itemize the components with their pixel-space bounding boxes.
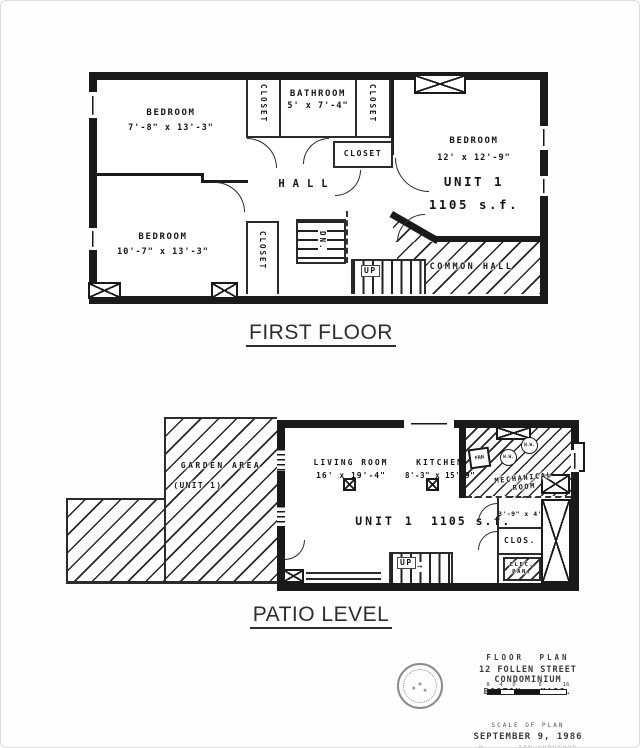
common-hall-wall [435, 236, 540, 242]
stair-dash-line [346, 211, 348, 263]
closet-mid: CLOSET [333, 141, 393, 168]
window-slot-icon [89, 228, 97, 250]
stairs-up-patio: UP → [389, 552, 453, 583]
surveyor-line: P·· ····ION SURVEYOR [449, 744, 607, 748]
shaft-box [541, 499, 571, 583]
bedroom-right-label: BEDROOM 12' x 12'-9" UNIT 1 1105 s.f. [422, 136, 526, 213]
floor-plan-sheet: CLOSET BATHROOM 5' x 7'-4" CLOSET CLOSET… [0, 0, 640, 748]
closet-label: CLOSET [344, 149, 383, 159]
bedroom-bottom-left-label: BEDROOM 10'-7" x 13'-3" [103, 232, 223, 258]
scale-label: SCALE OF PLAN [449, 722, 607, 729]
patio-closet: CLOS. [499, 529, 541, 555]
bathroom-room: BATHROOM 5' x 7'-4" [281, 80, 357, 138]
first-floor-plan: CLOSET BATHROOM 5' x 7'-4" CLOSET CLOSET… [89, 72, 548, 304]
closet-top-right: CLOSET [357, 80, 391, 138]
window-icon [283, 569, 304, 583]
garden-area-lower [66, 498, 164, 584]
door-arc [285, 540, 305, 560]
closet-label: CLOSET [368, 84, 377, 123]
door-arc [215, 182, 245, 212]
kitchen-label: KITCHEN 8'-3" x 15'-9" [405, 458, 475, 481]
plan-date: SEPTEMBER 9, 1986 [449, 732, 607, 742]
window-slot-icon [277, 506, 285, 526]
window-slot-icon [540, 176, 548, 196]
bathroom-dims: 5' x 7'-4" [281, 101, 355, 112]
garden-unit-label: (UNIT 1) [166, 481, 230, 491]
closet-label: CLOSET [258, 231, 267, 270]
small-room-3-9: 3'-9" x 4' [499, 501, 541, 529]
window-icon [414, 74, 466, 94]
bedroom-divider-wall [97, 173, 201, 176]
bedroom-top-left-label: BEDROOM 7'-8" x 13'-3" [107, 108, 235, 134]
scale-bar: 8 4 0 8 16 [487, 689, 567, 695]
window-slot-icon [89, 92, 97, 118]
title-line1: FLOOR PLAN [449, 653, 607, 662]
bathroom-label: BATHROOM [281, 89, 355, 101]
window-sill [306, 572, 381, 580]
stairs-down: DN. [296, 219, 346, 264]
stairs-up-label: UP [361, 265, 380, 277]
patio-level-heading: PATIO LEVEL [1, 603, 640, 627]
garden-area-label: GARDEN AREA [170, 461, 272, 471]
hot-water-tank-icon: H.W. [521, 437, 538, 454]
electrical-panel: ELEC. PAN. [503, 557, 541, 581]
up-arrow-icon: → [417, 562, 422, 572]
fixture-icon [426, 478, 439, 491]
stairs-down-label: DN. [318, 229, 327, 253]
window-slot-icon [540, 126, 548, 150]
patio-unit-label: UNIT 1 [347, 514, 423, 529]
closet-label: CLOSET [259, 84, 268, 123]
fixture-icon [343, 478, 356, 491]
window-slot-icon [571, 450, 579, 472]
hot-water-tank-icon: H.W. [500, 449, 517, 466]
window-icon [211, 282, 238, 299]
surveyor-seal [397, 663, 443, 709]
door-arc [478, 503, 497, 522]
closet-top-left: CLOSET [246, 80, 281, 138]
window-icon [88, 282, 121, 299]
hall-label: HALL [265, 178, 341, 192]
window-slot-icon [404, 420, 454, 428]
door-arc [303, 138, 329, 164]
door-arc [247, 138, 277, 168]
title-block: FLOOR PLAN 12 FOLLEN STREET CONDOMINIUM … [393, 653, 608, 743]
first-floor-heading: FIRST FLOOR [1, 321, 640, 345]
closet-bottom: CLOSET [246, 221, 279, 294]
stairs-up-label: UP [397, 557, 416, 569]
window-slot-icon [277, 449, 285, 471]
patio-level-plan: FRN H.W. H.W. MECHANICAL ROOM LIVING ROO… [277, 420, 579, 591]
title-line2: 12 FOLLEN STREET CONDOMINIUM [449, 665, 607, 685]
door-arc [478, 531, 497, 550]
common-hall-label: COMMON HALL [409, 262, 534, 273]
garden-area: GARDEN AREA (UNIT 1) [164, 417, 277, 584]
